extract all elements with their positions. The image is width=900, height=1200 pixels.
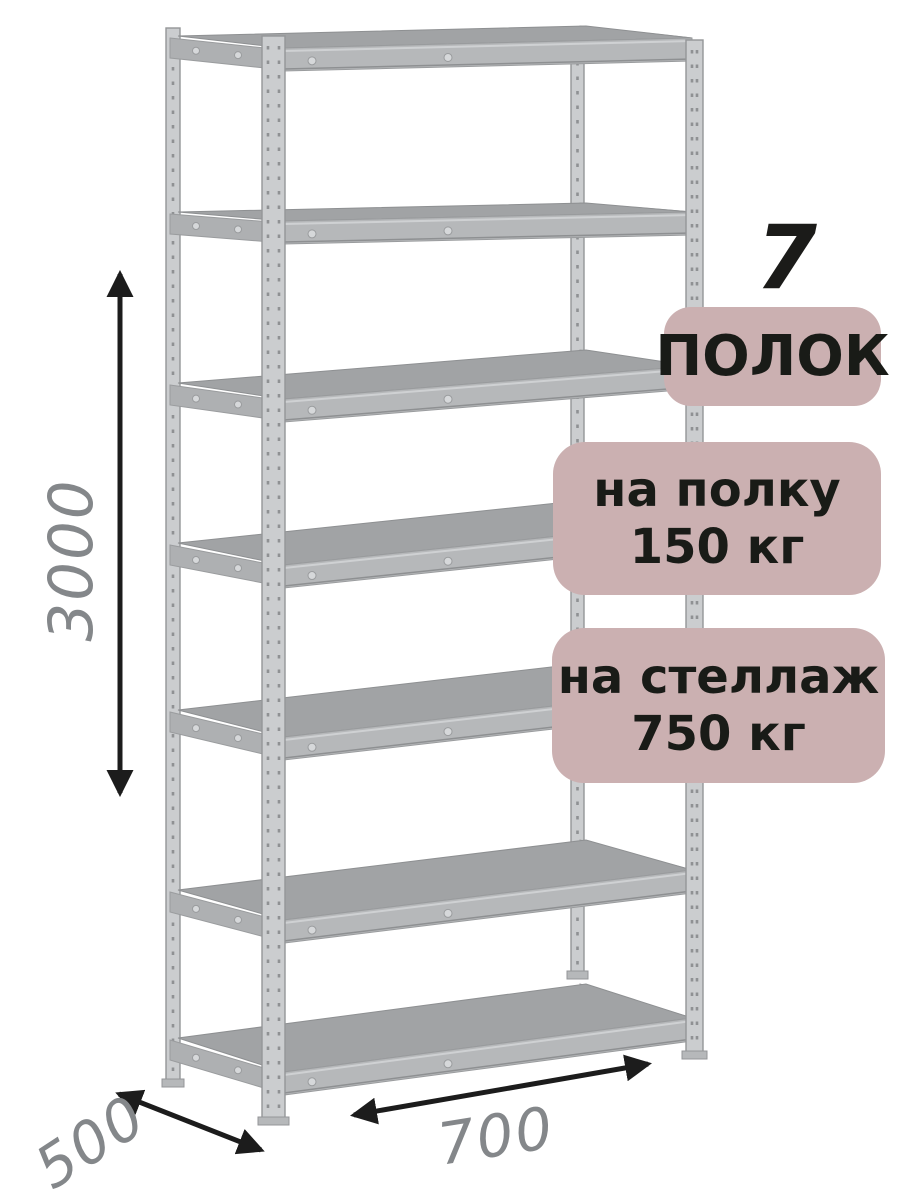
shelf-load-line2: 150 кг <box>630 519 805 576</box>
shelf-load-badge: на полку 150 кг <box>553 442 881 595</box>
shelf-count-badge: ПОЛОК <box>664 307 881 406</box>
shelf-count-badge-label: ПОЛОК <box>655 324 889 389</box>
screw-dot <box>193 395 200 402</box>
screw-dot <box>235 52 242 59</box>
rack-shelf <box>170 350 692 422</box>
screw-dot <box>308 406 316 414</box>
rack-illustration <box>0 0 900 1200</box>
screw-dot <box>308 57 316 65</box>
screw-dot <box>235 916 242 923</box>
screw-dot <box>444 557 452 565</box>
screw-dot <box>444 395 452 403</box>
shelf-count-number: 7 <box>698 208 873 308</box>
height-dimension-label: 3000 <box>37 440 107 680</box>
screw-dot <box>235 401 242 408</box>
screw-dot <box>193 725 200 732</box>
screw-dot <box>444 728 452 736</box>
screw-dot <box>308 230 316 238</box>
screw-dot <box>444 1060 452 1068</box>
rack-shelf <box>170 840 692 943</box>
screw-dot <box>308 926 316 934</box>
screw-dot <box>308 743 316 751</box>
rack-shelf <box>170 203 692 244</box>
screw-dot <box>193 223 200 230</box>
screw-dot <box>235 735 242 742</box>
rack-load-badge: на стеллаж 750 кг <box>552 628 885 783</box>
rack-post <box>258 36 289 1125</box>
screw-dot <box>235 565 242 572</box>
screw-dot <box>193 905 200 912</box>
screw-dot <box>193 47 200 54</box>
shelf-load-line1: на полку <box>593 462 840 519</box>
screw-dot <box>308 1078 316 1086</box>
screw-dot <box>235 226 242 233</box>
screw-dot <box>235 1067 242 1074</box>
screw-dot <box>193 557 200 564</box>
rack-load-line2: 750 кг <box>631 706 806 763</box>
rack-load-line1: на стеллаж <box>558 649 880 706</box>
screw-dot <box>308 572 316 580</box>
product-image: 7 ПОЛОК на полку 150 кг на стеллаж 750 к… <box>0 0 900 1200</box>
screw-dot <box>444 227 452 235</box>
screw-dot <box>193 1054 200 1061</box>
rack-shelf <box>170 26 692 71</box>
rack-shelf <box>170 984 692 1095</box>
screw-dot <box>444 909 452 917</box>
screw-dot <box>444 53 452 61</box>
